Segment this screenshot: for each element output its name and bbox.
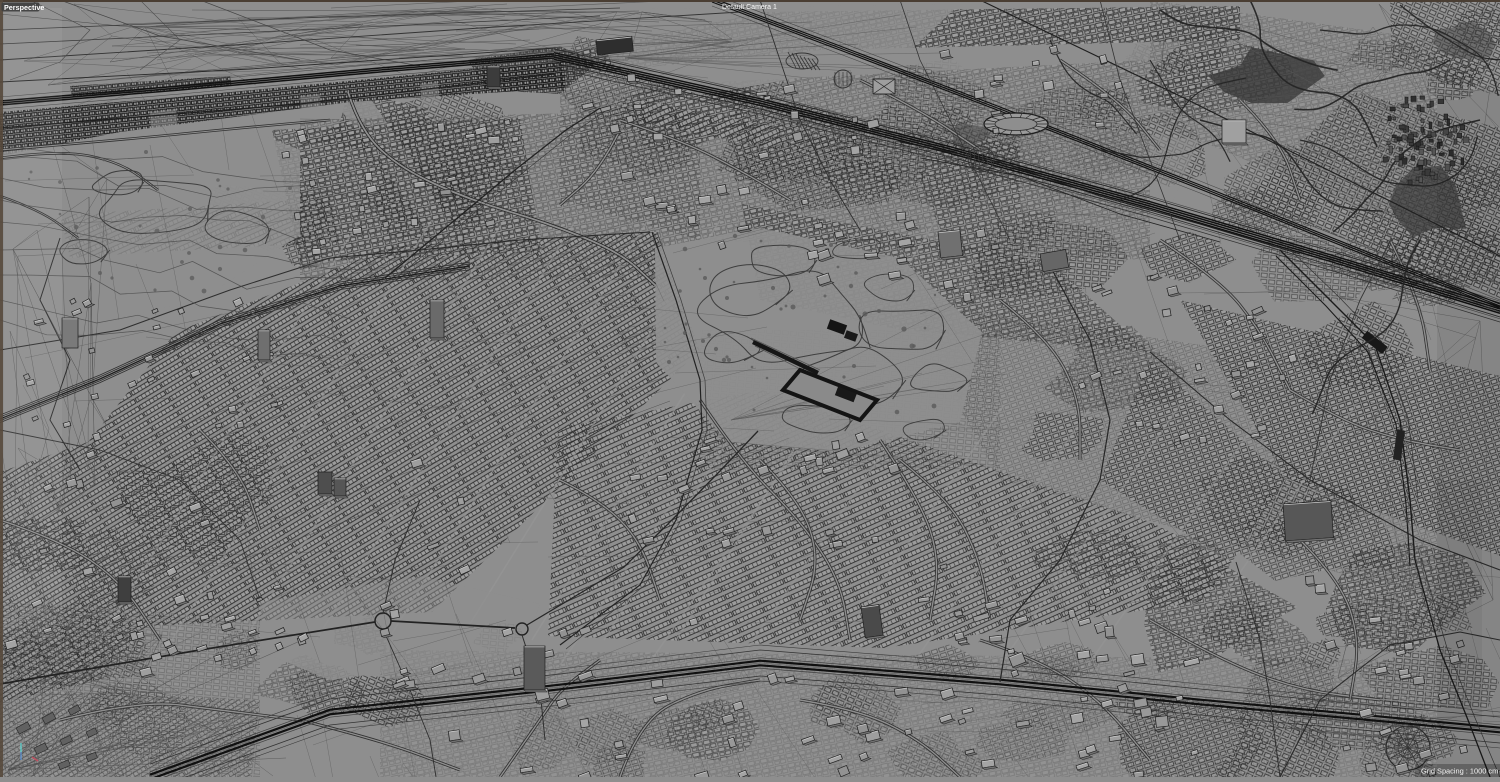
svg-text:Perspective: Perspective — [4, 3, 44, 12]
svg-text:Grid Spacing : 1000 cm: Grid Spacing : 1000 cm — [1421, 767, 1498, 776]
svg-text:Default Camera 1: Default Camera 1 — [722, 4, 777, 11]
